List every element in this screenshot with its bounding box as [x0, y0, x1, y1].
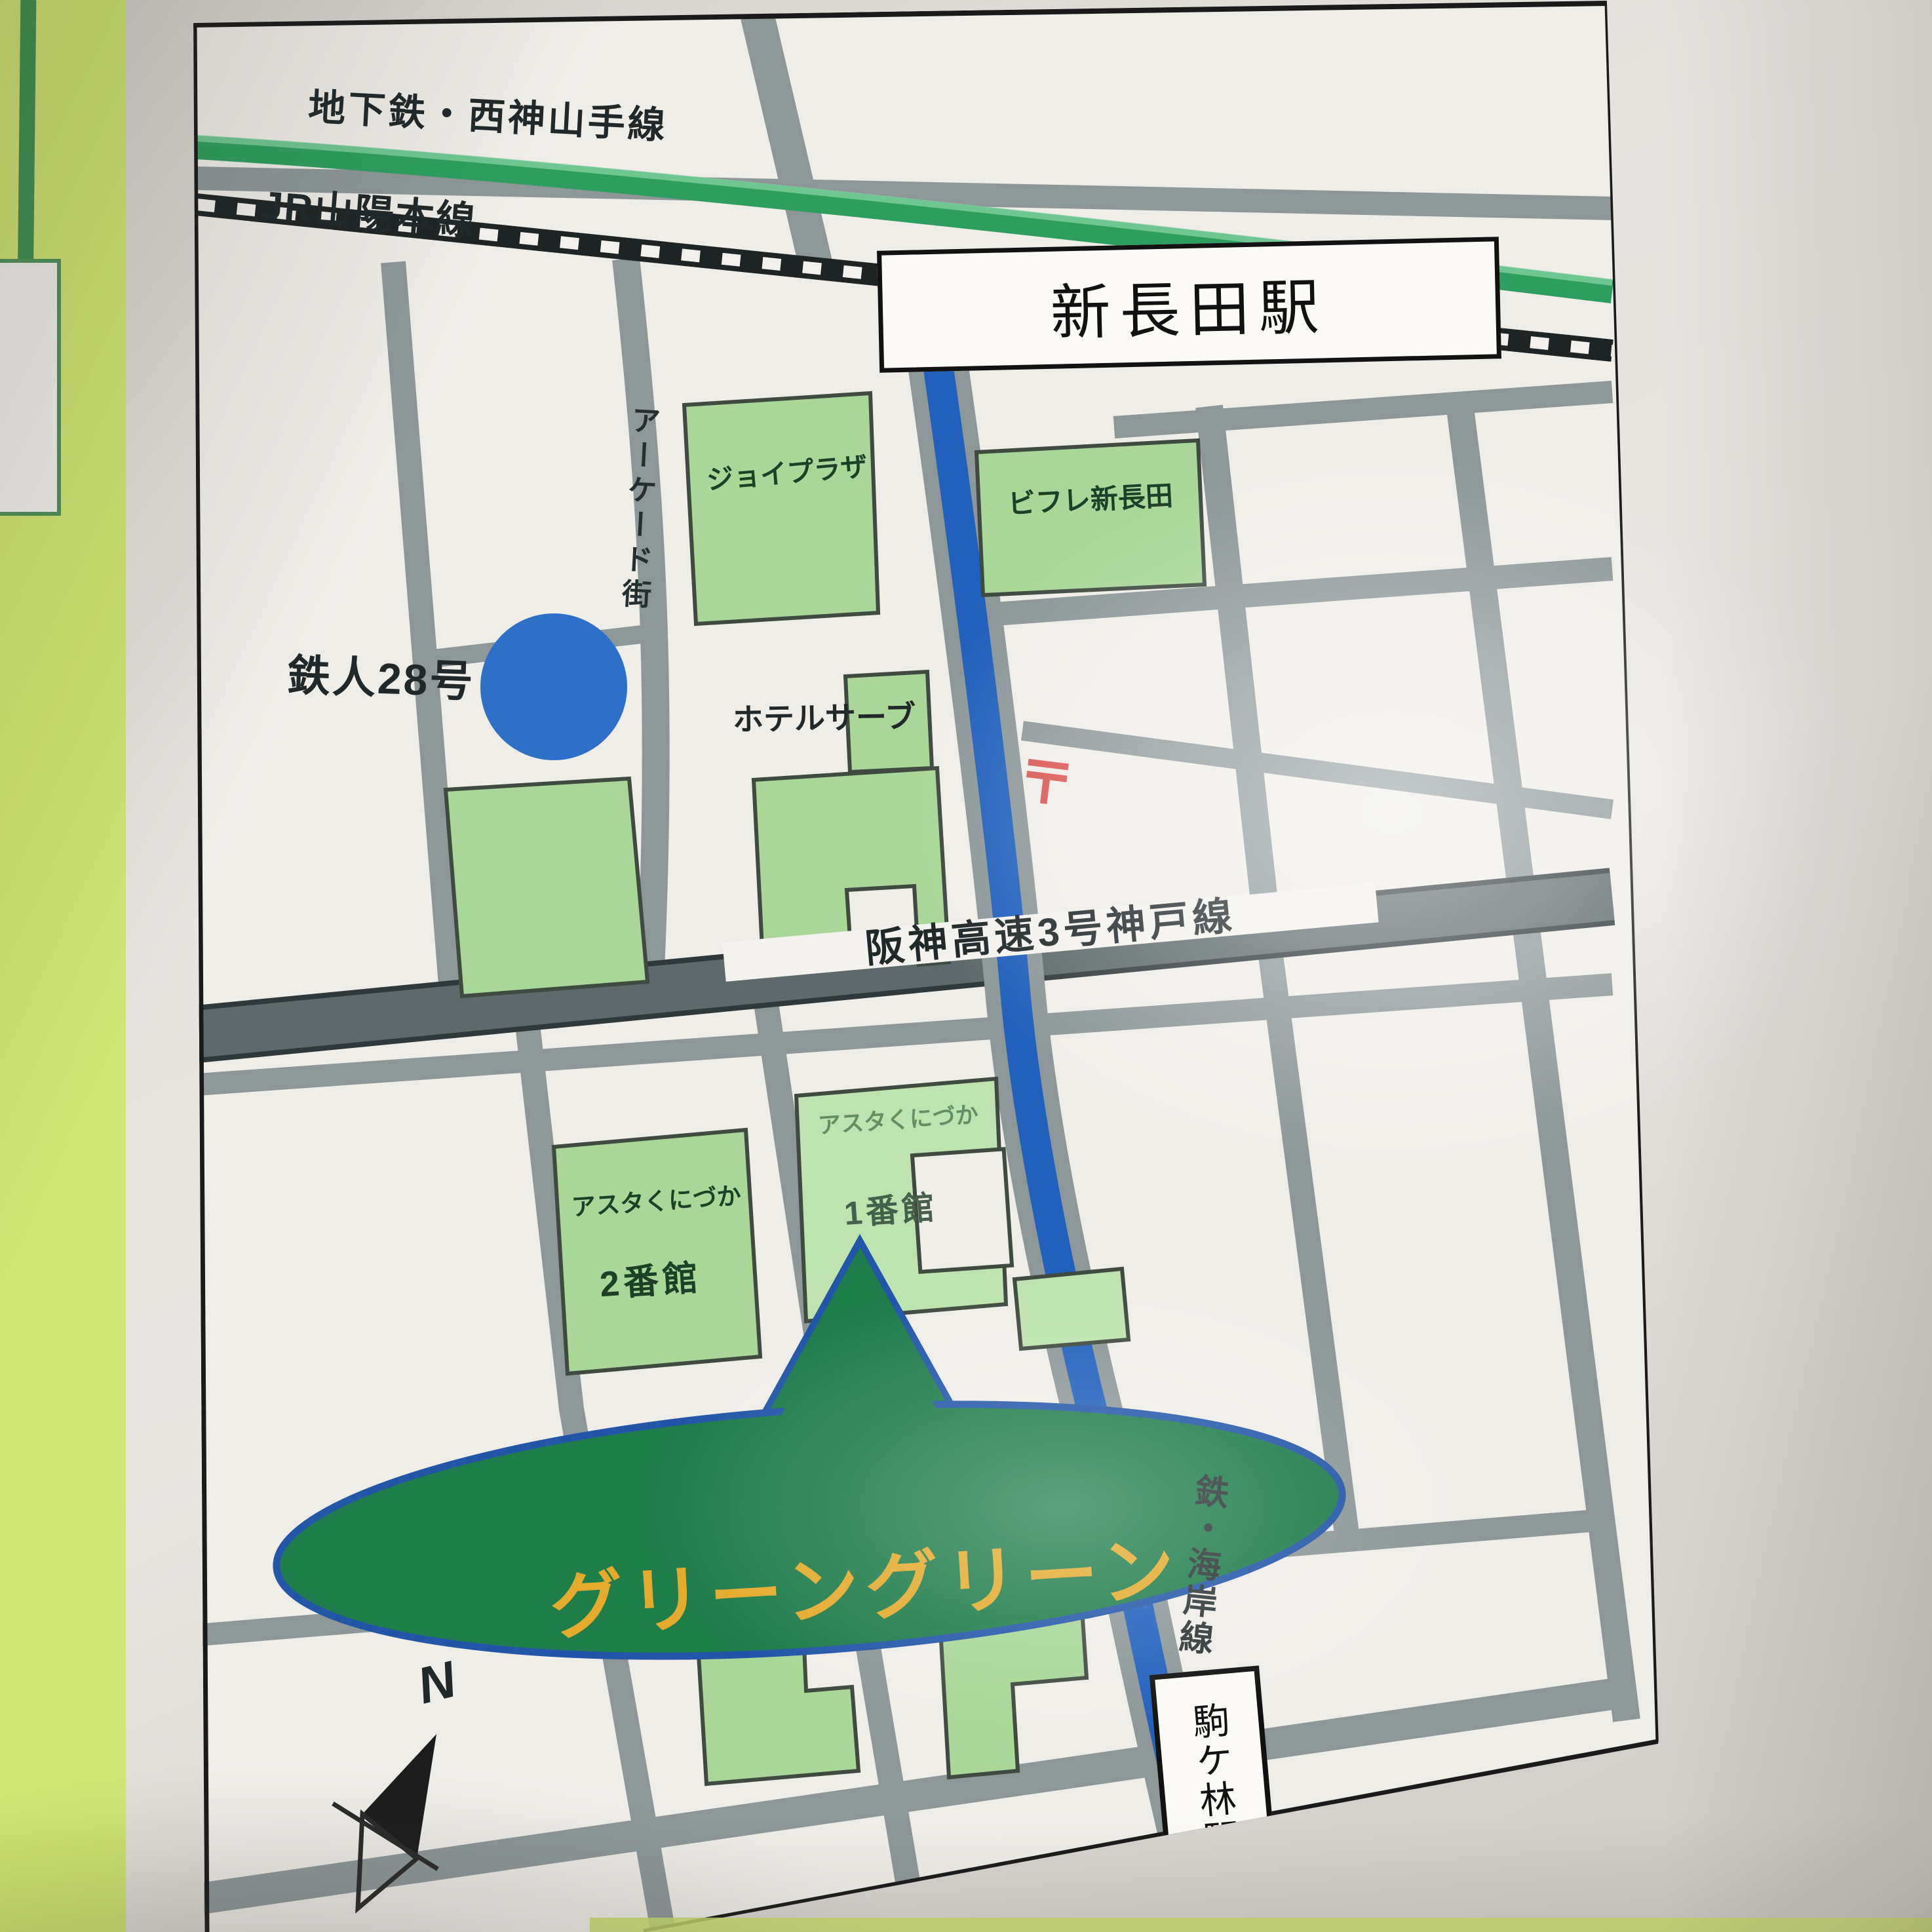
- tetsujin-marker-circle: [480, 613, 627, 760]
- photographed-map-page: 地下鉄・西神山手線 JR山陽本線 新長田駅 ジョイプラザ ビフレ新長田 アーケー…: [0, 0, 1932, 1932]
- road-top-vertical: [754, 0, 816, 265]
- compass-solid-needle: [362, 1734, 436, 1859]
- station-shin-nagata-label: 新長田駅: [1049, 258, 1329, 352]
- building-joy-plaza: [684, 393, 878, 624]
- road-top-right: [1114, 392, 1612, 427]
- road-vd: [1209, 406, 1268, 936]
- station-komagabayashi-label: 駒ケ林駅: [1180, 1700, 1247, 1861]
- label-hotel-serve: ホテルサーブ: [733, 701, 916, 735]
- station-shin-nagata: 新長田駅: [877, 237, 1501, 372]
- building-asta-2: [554, 1130, 760, 1374]
- building-large-unlabeled: [446, 779, 647, 996]
- road-ve: [1458, 393, 1527, 934]
- page-bottom-green-band: [590, 1918, 1932, 1932]
- road-left-vertical: [393, 262, 454, 1017]
- road-ve-lower: [1527, 934, 1627, 1720]
- label-tetsujin28: 鉄人28号: [286, 653, 476, 703]
- station-komagabayashi: 駒ケ林駅: [1150, 1665, 1279, 1895]
- building-small-right: [1014, 1269, 1129, 1349]
- page-left-cropped-box: [0, 259, 61, 516]
- post-office-icon: 〒: [1014, 752, 1078, 816]
- label-asta1-num: 1番館: [843, 1191, 938, 1230]
- map-border-left: [195, 24, 207, 1932]
- label-asta2-num: 2番館: [598, 1260, 703, 1303]
- access-map: 地下鉄・西神山手線 JR山陽本線 新長田駅 ジョイプラザ ビフレ新長田 アーケー…: [0, 0, 1932, 1932]
- map-border-top: [193, 3, 1607, 25]
- map-border-right: [1607, 3, 1658, 1742]
- road-mid-right: [1022, 731, 1612, 809]
